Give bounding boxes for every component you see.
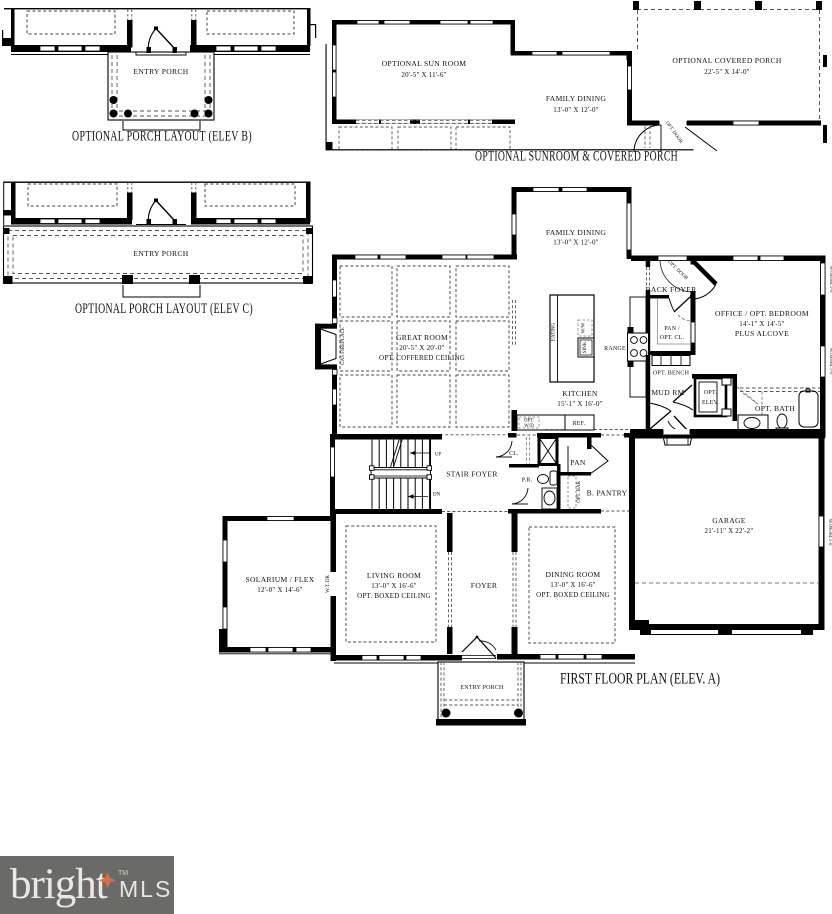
svg-text:OPTIONAL PORCH LAYOUT (ELEV C): OPTIONAL PORCH LAYOUT (ELEV C)	[75, 301, 253, 317]
svg-text:DINING ROOM: DINING ROOM	[546, 570, 601, 579]
svg-text:OPTIONAL PORCH LAYOUT (ELEV B): OPTIONAL PORCH LAYOUT (ELEV B)	[72, 129, 252, 145]
svg-text:P.R.: P.R.	[522, 478, 533, 484]
svg-text:ENTRY PORCH: ENTRY PORCH	[133, 249, 188, 258]
svg-text:13'-0" X 16'-6": 13'-0" X 16'-6"	[550, 581, 595, 589]
svg-text:SOLARIUM / FLEX: SOLARIUM / FLEX	[245, 575, 314, 584]
svg-text:OPT. DOOR: OPT. DOOR	[666, 260, 688, 282]
svg-text:RANGE: RANGE	[604, 346, 626, 352]
svg-text:OPT. BENCH: OPT. BENCH	[653, 371, 690, 377]
svg-text:EATING: EATING	[552, 323, 557, 341]
svg-text:OPTIONAL COVERED PORCH: OPTIONAL COVERED PORCH	[672, 56, 781, 65]
svg-text:STAIR FOYER: STAIR FOYER	[446, 470, 498, 479]
svg-text:bright: bright	[10, 861, 108, 908]
svg-text:PLUS ALCOVE: PLUS ALCOVE	[735, 329, 789, 338]
svg-text:OPTIONAL SUNROOM & COVERED POR: OPTIONAL SUNROOM & COVERED PORCH	[475, 149, 678, 165]
svg-text:CL.: CL.	[509, 451, 519, 457]
svg-text:13'-0" X 12'-0": 13'-0" X 12'-0"	[553, 239, 598, 247]
svg-text:15'-1" X 16'-0": 15'-1" X 16'-0"	[557, 400, 602, 408]
svg-text:13'-0" X 16'-6": 13'-0" X 16'-6"	[371, 582, 416, 590]
svg-text:20'-5" X 11'-6": 20'-5" X 11'-6"	[401, 71, 446, 79]
svg-text:OPT. BAR: OPT. BAR	[577, 480, 582, 503]
svg-text:B. PANTRY: B. PANTRY	[587, 489, 628, 498]
svg-text:12'-0" X 14'-6": 12'-0" X 14'-6"	[257, 586, 302, 594]
svg-text:REF.: REF.	[573, 421, 586, 427]
svg-text:21'-11" X 22'-2": 21'-11" X 22'-2"	[705, 527, 754, 535]
svg-text:13'-0" X 12'-0": 13'-0" X 12'-0"	[553, 106, 598, 114]
svg-text:FIRST FLOOR PLAN (ELEV. A): FIRST FLOOR PLAN (ELEV. A)	[560, 671, 720, 688]
svg-text:FAMILY DINING: FAMILY DINING	[546, 94, 607, 103]
svg-text:MLS: MLS	[119, 876, 172, 902]
svg-text:ENTRY PORCH: ENTRY PORCH	[460, 685, 504, 691]
svg-text:GREAT ROOM: GREAT ROOM	[396, 333, 448, 342]
svg-text:OPT.: OPT.	[524, 419, 534, 424]
svg-text:PAN: PAN	[570, 458, 586, 467]
svg-text:UP: UP	[435, 453, 442, 458]
svg-text:BACK FOYER: BACK FOYER	[646, 285, 698, 294]
svg-text:OPTIONAL SUN ROOM: OPTIONAL SUN ROOM	[382, 59, 467, 68]
svg-text:ENTRY PORCH: ENTRY PORCH	[133, 67, 188, 76]
svg-text:OPT. BATH: OPT. BATH	[755, 404, 795, 413]
svg-text:OFFICE / OPT. BEDROOM: OFFICE / OPT. BEDROOM	[715, 309, 809, 318]
svg-text:OPT. COFFERED CEILING: OPT. COFFERED CEILING	[379, 354, 465, 362]
svg-text:W.0950R.1-0: W.0950R.1-0	[828, 266, 832, 293]
svg-text:W/W: W/W	[582, 322, 587, 333]
svg-text:GAS FIREPLACE: GAS FIREPLACE	[341, 327, 346, 365]
svg-text:ELEV.: ELEV.	[702, 400, 719, 406]
svg-text:OPT. CL.: OPT. CL.	[660, 335, 685, 341]
svg-text:FOYER: FOYER	[471, 581, 498, 590]
svg-text:FAMILY DINING: FAMILY DINING	[546, 228, 607, 237]
svg-text:DN: DN	[433, 493, 441, 498]
svg-text:OPT.: OPT.	[704, 390, 717, 396]
svg-text:W.0950R.1-0: W.0950R.1-0	[828, 348, 832, 375]
svg-text:LIVING ROOM: LIVING ROOM	[367, 571, 421, 580]
svg-text:OPT. BOXED CEILING: OPT. BOXED CEILING	[357, 592, 431, 600]
svg-text:W.T. DR: W.T. DR	[326, 575, 331, 593]
svg-text:PAN /: PAN /	[664, 326, 680, 332]
svg-text:22'-5" X 14'-0": 22'-5" X 14'-0"	[704, 68, 749, 76]
svg-text:W/D: W/D	[524, 424, 534, 429]
svg-text:GARAGE: GARAGE	[712, 516, 746, 525]
svg-text:20'-5" X 20'-0": 20'-5" X 20'-0"	[399, 344, 444, 352]
svg-text:KITCHEN: KITCHEN	[562, 389, 598, 398]
svg-text:OPT. BOXED CEILING: OPT. BOXED CEILING	[536, 591, 610, 599]
svg-text:W.0950R.1-0: W.0950R.1-0	[827, 519, 832, 546]
svg-text:14'-1" X 14'-5": 14'-1" X 14'-5"	[739, 320, 784, 328]
svg-text:SINK: SINK	[583, 341, 588, 353]
